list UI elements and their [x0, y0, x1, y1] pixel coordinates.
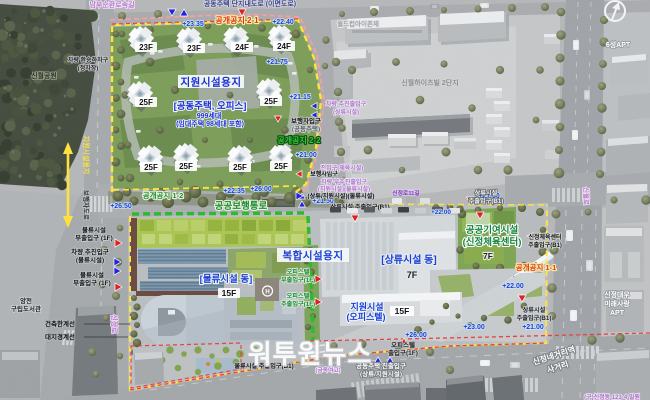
svg-text:워투원뉴스: 워투원뉴스 — [248, 339, 373, 369]
